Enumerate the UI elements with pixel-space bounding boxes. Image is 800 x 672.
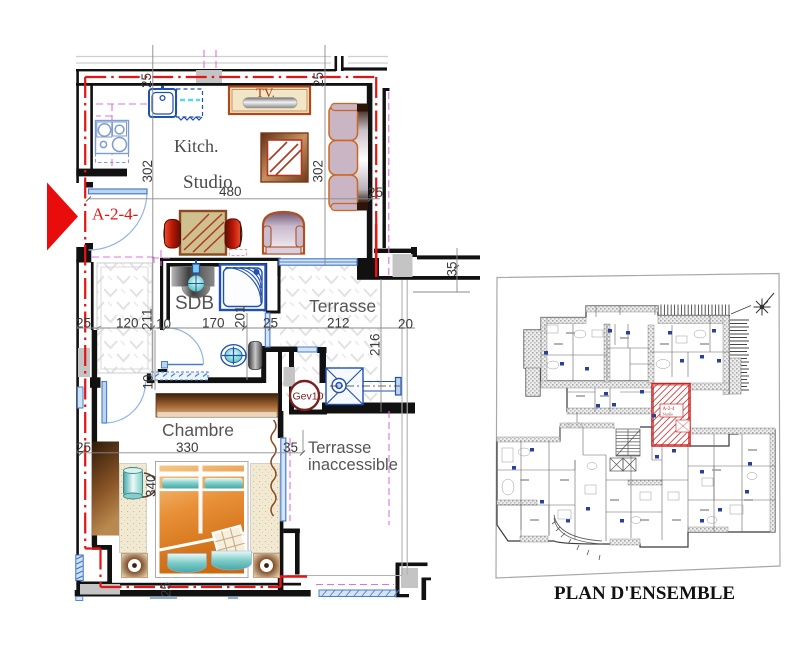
svg-text:25: 25 [139, 73, 154, 88]
svg-text:35: 35 [283, 440, 298, 455]
svg-text:Studio: Studio [183, 172, 233, 193]
svg-text:Studio: Studio [663, 412, 673, 417]
svg-text:20: 20 [398, 316, 413, 331]
svg-text:25: 25 [76, 440, 91, 455]
svg-text:SDB: SDB [175, 293, 214, 314]
svg-text:211: 211 [140, 308, 155, 330]
svg-text:A-2-4-: A-2-4- [92, 205, 139, 224]
svg-text:10: 10 [141, 374, 156, 389]
svg-text:10: 10 [156, 316, 171, 331]
svg-text:TV.: TV. [256, 85, 275, 100]
svg-text:35: 35 [445, 261, 460, 276]
svg-text:330: 330 [176, 440, 199, 455]
svg-text:302: 302 [140, 160, 155, 183]
svg-text:Gev10: Gev10 [293, 391, 324, 403]
svg-text:201: 201 [233, 305, 248, 328]
svg-text:120: 120 [116, 315, 139, 330]
svg-text:25: 25 [368, 185, 383, 200]
svg-text:25: 25 [159, 582, 174, 597]
svg-text:302: 302 [311, 160, 326, 183]
svg-text:PLAN D'ENSEMBLE: PLAN D'ENSEMBLE [554, 583, 735, 604]
svg-text:340: 340 [144, 474, 159, 497]
svg-text:212: 212 [327, 315, 350, 330]
svg-text:Kitch.: Kitch. [174, 136, 219, 156]
svg-text:Terrasse: Terrasse [309, 296, 376, 316]
svg-text:25: 25 [263, 315, 278, 330]
svg-text:inaccessible: inaccessible [308, 456, 398, 474]
svg-text:Chambre: Chambre [162, 420, 234, 440]
svg-text:Terrasse: Terrasse [308, 439, 371, 457]
svg-text:25: 25 [311, 72, 326, 87]
svg-text:25: 25 [76, 315, 91, 330]
svg-text:216: 216 [368, 333, 383, 356]
svg-text:170: 170 [202, 315, 225, 330]
